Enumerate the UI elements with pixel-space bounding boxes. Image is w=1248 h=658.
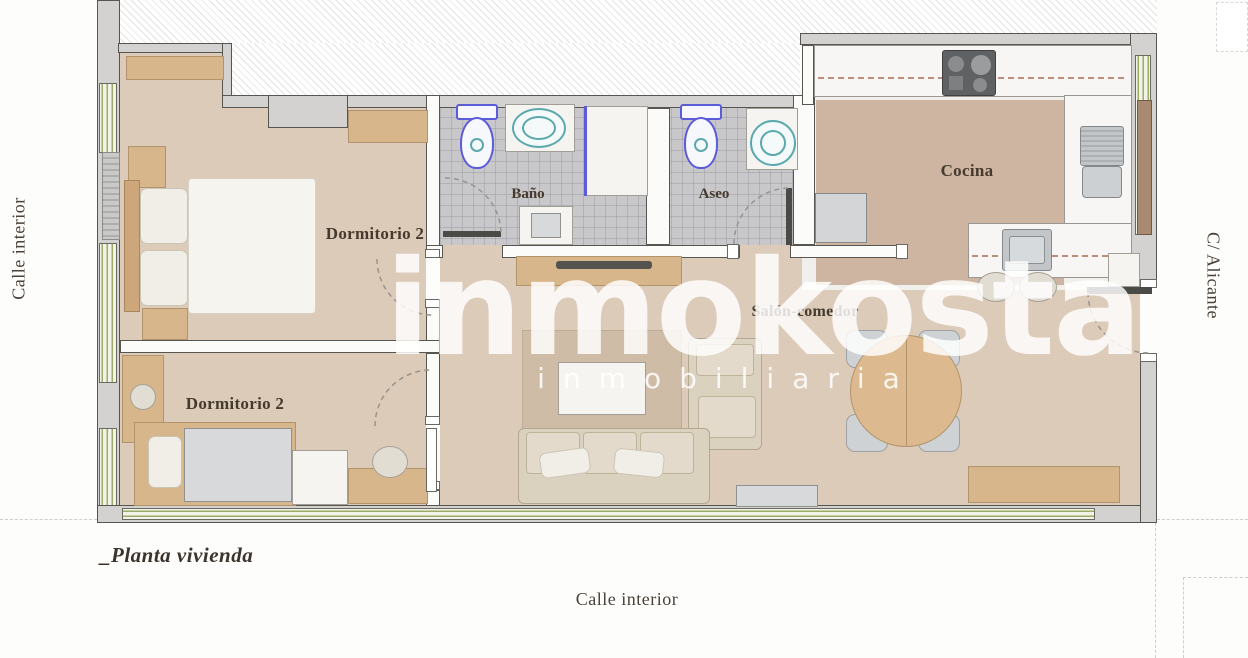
jamb (1140, 353, 1157, 362)
shutter-right (1137, 100, 1152, 235)
shower-tray (586, 106, 648, 196)
sideboard-wood (968, 466, 1120, 503)
single-bed-mattress (184, 428, 292, 502)
boundary-dash (0, 519, 97, 520)
nightstand (142, 308, 188, 340)
door-leaf-bedroom (426, 428, 437, 492)
closet-shelf (126, 56, 224, 80)
wall-right-lower (1140, 355, 1157, 523)
kitchen-sink (1080, 126, 1124, 200)
sofa-pillow (613, 447, 665, 478)
window-left-1 (99, 83, 117, 153)
white-desk (292, 450, 348, 505)
jamb (425, 416, 440, 425)
hatch-area-top-left (97, 0, 800, 43)
window-left-2 (99, 243, 117, 383)
wall-bedroom-bottom-right-lower (426, 490, 440, 506)
wall-top-bedroom (118, 43, 232, 53)
wall-block (268, 95, 348, 128)
hatch-area-middle (222, 43, 800, 95)
toilet-fixture (456, 104, 498, 172)
desk-chair (372, 446, 408, 478)
street-label-bottom: Calle interior (502, 589, 752, 610)
radiator (102, 152, 120, 240)
street-label-right: C/ Alicante (1203, 201, 1224, 351)
floorplan-sheet: Dormitorio 2 Dormitorio 2 Baño Aseo Coci… (0, 0, 1248, 658)
lamp (130, 384, 156, 410)
boundary-dash-box (1216, 2, 1248, 52)
room-label-aseo: Aseo (676, 186, 752, 203)
room-label-bano: Baño (490, 186, 566, 203)
sideboard-gray (736, 485, 818, 507)
sink-basin-inner (522, 116, 556, 140)
watermark-tagline: inmobiliaria (505, 362, 950, 395)
bed-pillow (140, 250, 188, 306)
wall-top-kitchen (800, 33, 1135, 45)
sink-basin-inner (760, 130, 786, 156)
boundary-dash (1157, 519, 1248, 520)
street-label-left: Calle interior (9, 174, 30, 324)
shower-screen (584, 106, 587, 196)
hatch-area-top-right (800, 0, 1157, 33)
toilet-fixture (680, 104, 722, 172)
window-left-3 (99, 428, 117, 516)
room-label-cocina: Cocina (928, 161, 1006, 181)
wall-shower-aseo (646, 108, 670, 245)
desk-shelf (348, 110, 428, 143)
page-title: _Planta vivienda (100, 543, 253, 568)
room-label-dormitorio-bottom: Dormitorio 2 (160, 394, 310, 414)
cooktop (942, 50, 996, 96)
window-bottom (122, 508, 1095, 520)
wall-kitchen-left (802, 45, 814, 105)
bed-headboard (124, 180, 140, 312)
bed-pillow (140, 188, 188, 244)
bed-duvet (188, 178, 316, 314)
bed-pillow (148, 436, 182, 488)
boundary-dash (1183, 577, 1248, 578)
boundary-dash (1183, 577, 1184, 658)
boundary-dash (1155, 523, 1156, 658)
watermark-brand: inmokosta (385, 243, 1115, 375)
